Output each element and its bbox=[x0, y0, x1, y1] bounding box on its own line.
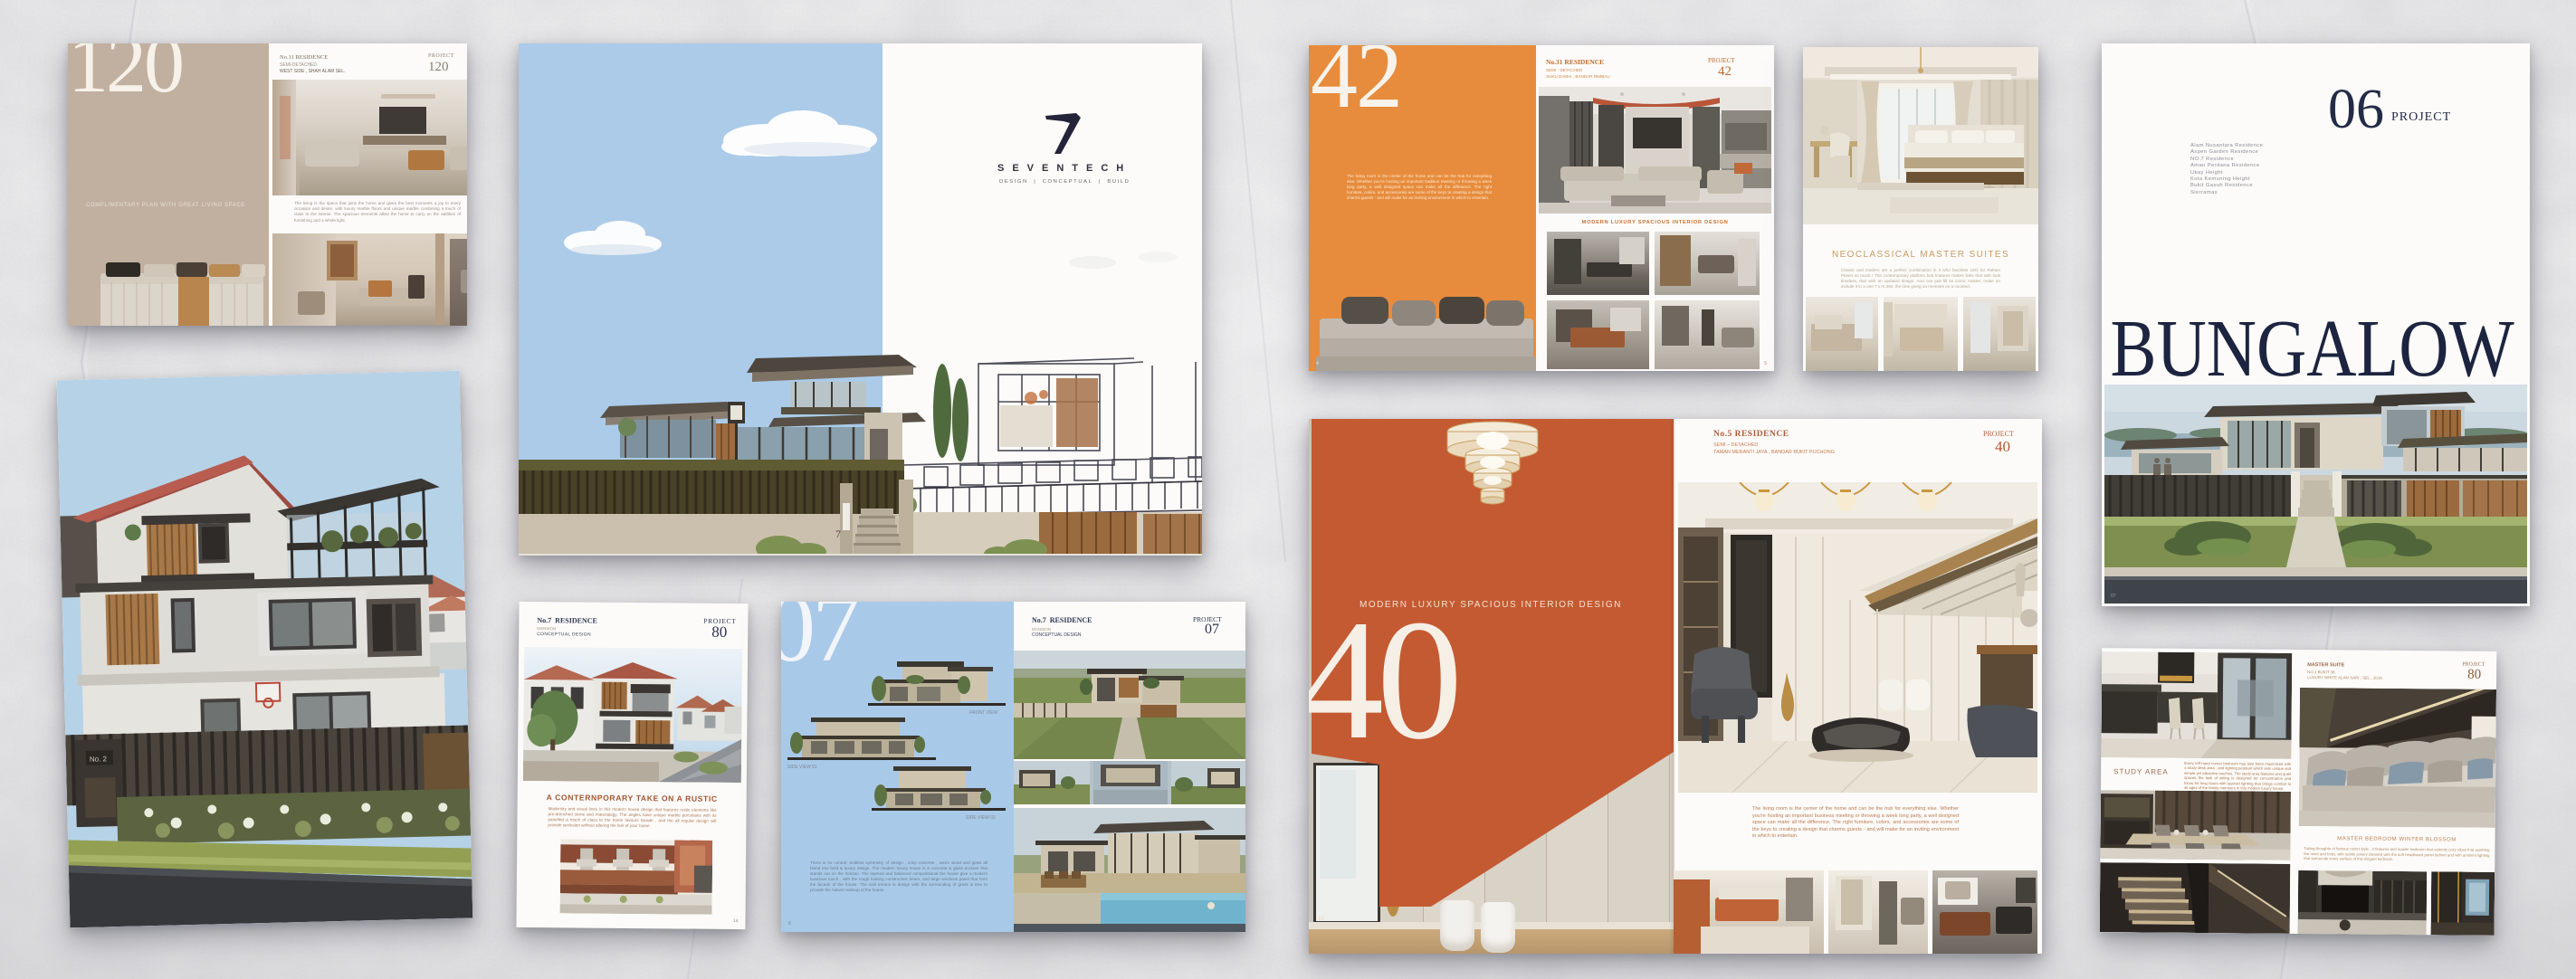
svg-text:SIDE VIEW 01: SIDE VIEW 01 bbox=[787, 765, 817, 770]
svg-text:DESIGN | CONCEPTUAL | BUIL: DESIGN | CONCEPTUAL | BUILD bbox=[999, 179, 1130, 185]
svg-text:7: 7 bbox=[835, 528, 841, 540]
svg-text:FRONT VIEW: FRONT VIEW bbox=[969, 710, 998, 716]
svg-text:SIDE VIEW 02: SIDE VIEW 02 bbox=[966, 815, 996, 821]
svg-text:No. 2: No. 2 bbox=[90, 755, 108, 763]
svg-text:SEVENTECH: SEVENTECH bbox=[997, 163, 1131, 174]
